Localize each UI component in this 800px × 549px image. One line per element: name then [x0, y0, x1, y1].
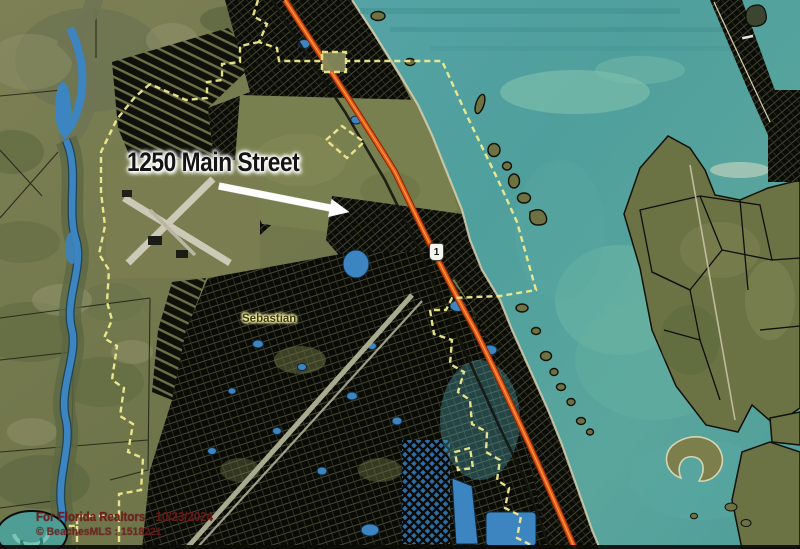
address-annotation: 1250 Main Street [127, 147, 299, 178]
route-shield-number: 1 [434, 247, 440, 258]
map-stage: 1250 Main Street Sebastian 1 For Florida… [0, 0, 800, 549]
mls-watermark: For Florida Realtors - 10/23/2024 © Beac… [36, 510, 228, 539]
watermark-copyright-line: © BeachesMLS : 1518221 [36, 525, 162, 539]
watermark-source-line: For Florida Realtors - 10/23/2024 [36, 510, 213, 524]
map-edge [0, 545, 800, 549]
satellite-map [0, 0, 800, 549]
city-name-label: Sebastian [242, 313, 296, 325]
us1-route-shield: 1 [429, 243, 444, 261]
